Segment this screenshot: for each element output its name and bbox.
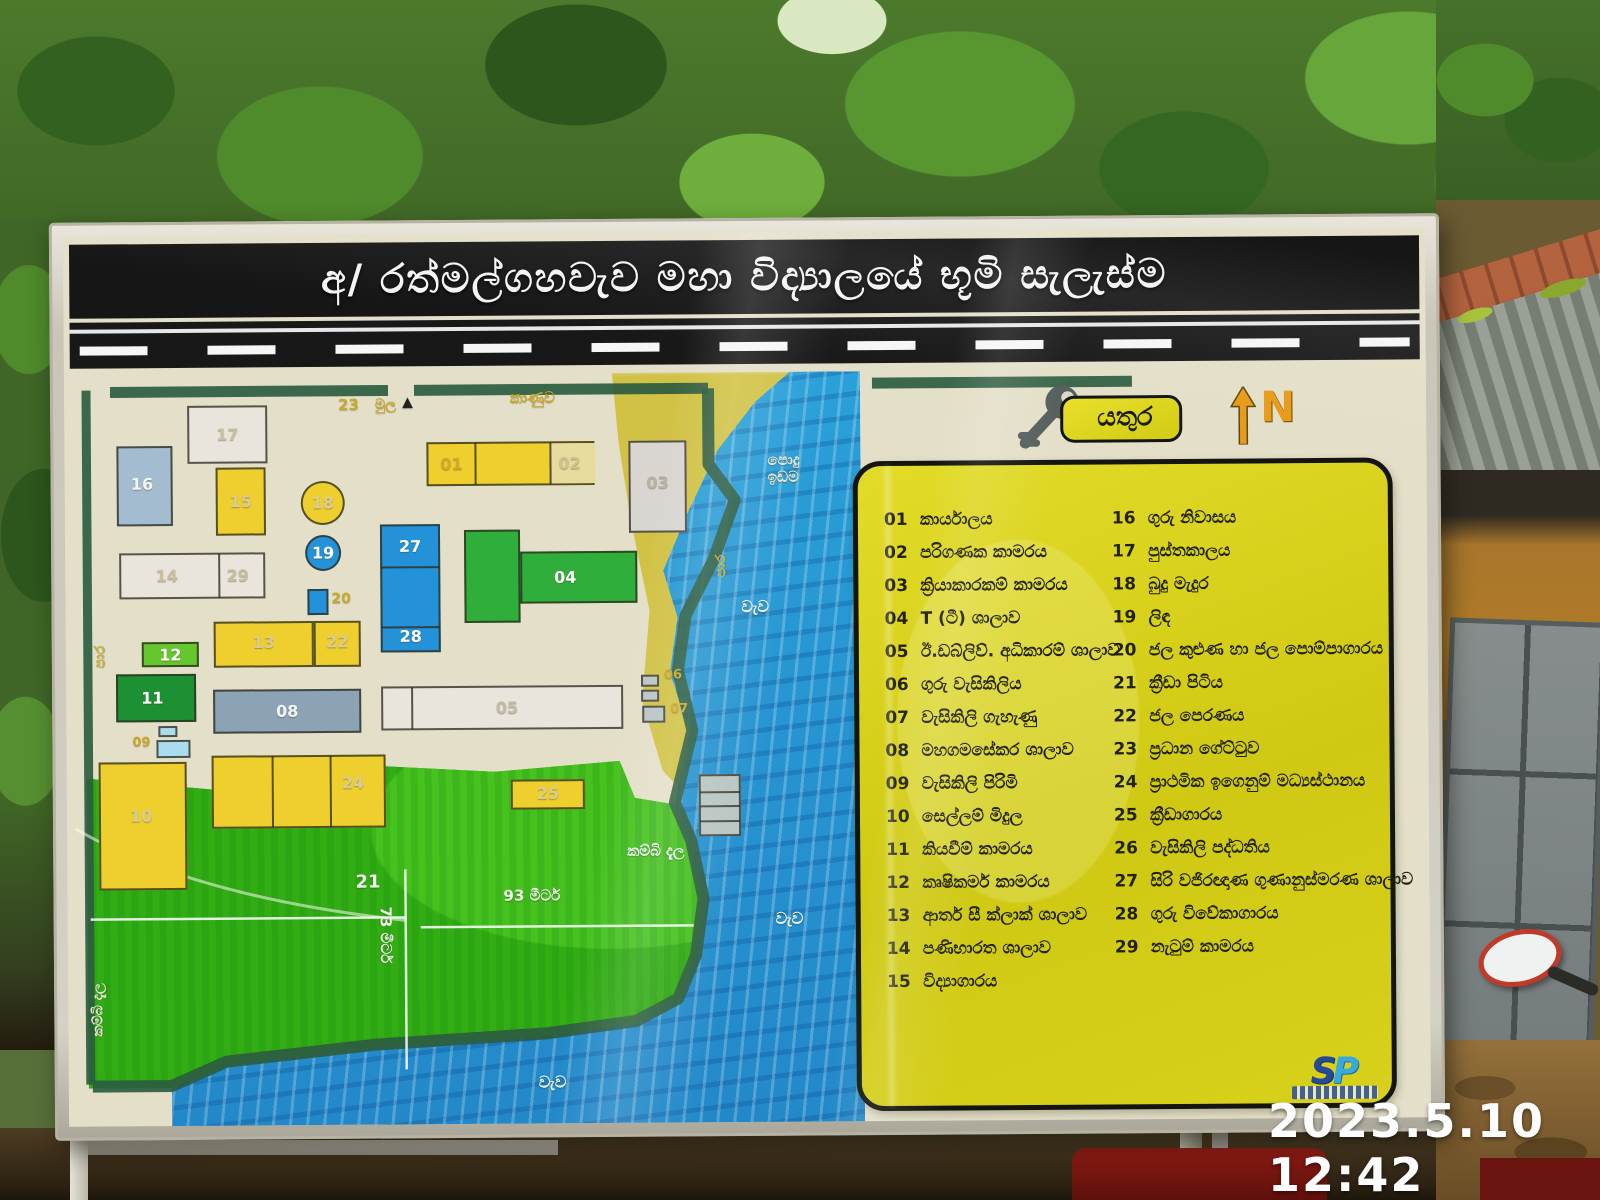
legend-item-12: 12කෘෂිකර්ම කාමරය	[886, 871, 1114, 893]
legend-column-2: 16ගුරු නිවාසය17පුස්තකාලය18බුදු මැදුර19ලි…	[1112, 506, 1414, 1003]
building-number: 14	[156, 566, 178, 585]
legend-item-25: 25ක්‍රීඩාගාරය	[1114, 803, 1413, 825]
map-label: කම්බි දැල	[90, 983, 106, 1036]
legend-item-24: 24ප්‍රාථමික ඉගෙනුම් මධ්‍යස්ථානය	[1114, 770, 1413, 792]
map-label: කම්බි දැල	[627, 842, 684, 860]
legend-text: ඊ.ඩබ්ලිව්. අධිකාරම් ශාලාව	[921, 640, 1120, 661]
building-09b	[156, 740, 190, 758]
printer-logo: SP	[1292, 1051, 1378, 1100]
legend-number: 17	[1112, 541, 1139, 561]
legend-item-07: 07වැසිකිලි ගැහැණු	[885, 706, 1113, 728]
legend-number: 27	[1114, 871, 1141, 891]
building-09a	[158, 726, 177, 737]
legend-item-02: 02පරිගණක කාමරය	[884, 541, 1112, 563]
photo-of-school-map-signboard: අ/ රත්මල්ගහවැව මහා විද්‍යාලයේ භූමි සැලැස…	[0, 0, 1600, 1200]
north-arrow-icon	[1230, 386, 1256, 444]
legend-item-21: 21ක්‍රීඩා පිටිය	[1113, 671, 1412, 693]
legend-text: පුස්තකාලය	[1148, 541, 1230, 562]
title-band: අ/ රත්මල්ගහවැව මහා විද්‍යාලයේ භූමි සැලැස…	[69, 235, 1419, 318]
legend-number: 24	[1114, 772, 1141, 792]
map-label: 93 මීටර්	[503, 887, 560, 905]
legend-text: කියවීම් කාමරය	[922, 839, 1033, 860]
road-dashed-line	[80, 337, 1410, 355]
building-06a	[641, 675, 659, 687]
legend-item-16: 16ගුරු නිවාසය	[1112, 506, 1411, 528]
building-number: 08	[276, 702, 298, 721]
legend-item-06: 06ගුරු වැසිකිලිය	[885, 673, 1113, 695]
legend-item-10: 10සෙල්ලම් මිදුල	[886, 805, 1114, 827]
map-label: ▲	[402, 394, 413, 410]
building-divider	[700, 805, 740, 807]
legend-item-17: 17පුස්තකාලය	[1112, 539, 1411, 561]
legend-columns: 01කාර්යාලය02පරිගණක කාමරය03ක්‍රියාකාරකම් …	[858, 463, 1392, 1014]
building-16: 16	[116, 446, 173, 526]
building-01-02: 0102	[426, 441, 594, 486]
legend-item-29: 29නැටුම් කාමරය	[1115, 935, 1414, 957]
building-13: 13	[214, 621, 314, 668]
legend-item-18: 18බුදු මැදුර	[1112, 572, 1411, 594]
legend-text: ලිඳ	[1149, 607, 1171, 627]
legend-text: සෙල්ලම් මිදුල	[922, 806, 1023, 827]
legend-number: 26	[1114, 838, 1141, 858]
road-solid-line	[70, 320, 1420, 333]
legend-text: ගුරු වැසිකිලිය	[921, 674, 1022, 695]
board-title: අ/ රත්මල්ගහවැව මහා විද්‍යාලයේ භූමි සැලැස…	[321, 251, 1168, 303]
legend-item-05: 05ඊ.ඩබ්ලිව්. අධිකාරම් ශාලාව	[885, 640, 1113, 662]
building-number: 27	[399, 537, 421, 556]
map-label: වැව	[539, 1073, 567, 1092]
legend-item-03: 03ක්‍රියාකාරකම් කාමරය	[884, 574, 1112, 596]
legend-item-14: 14පණිභාරත ශාලාව	[887, 937, 1115, 959]
building-number: 12	[159, 645, 181, 664]
building-number: 02	[558, 454, 580, 473]
building-divider	[700, 791, 740, 793]
legend-number: 28	[1115, 904, 1142, 924]
legend-item-09: 09වැසිකිලි පිරිමි	[886, 772, 1114, 794]
map-label: 20	[331, 591, 351, 607]
board-face: අ/ රත්මල්ගහවැව මහා විද්‍යාලයේ භූමි සැලැස…	[63, 227, 1431, 1126]
map-label: 73 මීටර්	[376, 906, 394, 963]
legend-item-22: 22ජල පෙරණය	[1113, 704, 1412, 726]
legend-item-08: 08මහගමසේකර ශාලාව	[885, 739, 1113, 761]
map-label: කාණුව	[510, 389, 555, 407]
map-label: මුල	[375, 396, 396, 412]
building-number: 11	[141, 689, 163, 708]
legend-text: විද්‍යාගාරය	[923, 971, 997, 992]
building-number: 03	[646, 473, 668, 492]
map-label: 06	[664, 668, 682, 683]
building-number: 15	[230, 492, 252, 511]
legend-text: නැටුම් කාමරය	[1151, 936, 1254, 957]
building-12: 12	[142, 642, 199, 667]
building-20	[307, 589, 328, 615]
building-15: 15	[216, 467, 266, 535]
legend-text: කාර්යාලය	[920, 509, 993, 530]
north-label: N	[1260, 386, 1295, 428]
legend-text: ජල කුළුණ හා ජල පොම්පාගාරය	[1149, 639, 1383, 661]
legend-item-01: 01කාර්යාලය	[884, 508, 1112, 530]
legend-text: මහගමසේකර ශාලාව	[921, 740, 1073, 761]
building-number: 22	[326, 632, 348, 651]
building-14-29: 1429	[119, 552, 265, 599]
legend-item-13: 13ආතර් සී ක්ලාක් ශාලාව	[887, 904, 1115, 926]
building-number: 29	[227, 566, 249, 585]
map-label: පොදු ඉඩම	[767, 452, 799, 487]
site-map: යතුර N 01කාර්යාලය02පරිගණක කාමරය03ක්‍රියා…	[72, 367, 1422, 1126]
signboard-support-bar	[88, 1140, 558, 1155]
building-number: 16	[131, 475, 153, 494]
building-27-28: 2728	[380, 524, 441, 652]
map-label: වැව	[776, 910, 804, 929]
legend-item-28: 28ගුරු විවේකාගාරය	[1115, 902, 1414, 924]
building-04b: 04	[520, 551, 637, 604]
map-label: පාර	[713, 555, 729, 578]
building-number: 13	[253, 633, 275, 652]
building-17: 17	[187, 405, 267, 464]
legend-number: 19	[1113, 607, 1140, 627]
building-number: 18	[312, 493, 334, 512]
building-divider	[272, 756, 274, 827]
legend-text: වැසිකිලි පද්ධතිය	[1150, 837, 1270, 858]
background-building	[1436, 0, 1600, 1200]
legend-number: 23	[1113, 739, 1140, 759]
legend-number: 16	[1112, 508, 1139, 528]
legend-item-11: 11කියවීම් කාමරය	[886, 838, 1114, 860]
building-divider	[218, 554, 220, 598]
legend-text: ගුරු විවේකාගාරය	[1151, 903, 1279, 924]
building-26	[699, 774, 741, 836]
building-number: 17	[216, 425, 238, 444]
legend-text: කෘෂිකර්ම කාමරය	[922, 872, 1049, 893]
building-11: 11	[116, 674, 196, 723]
building-divider	[700, 820, 740, 822]
legend-text: පණිභාරත ශාලාව	[923, 938, 1051, 959]
legend-item-19: 19ලිඳ	[1113, 605, 1412, 627]
map-label: පාර	[92, 646, 108, 669]
building-number: 10	[130, 807, 152, 826]
building-divider	[381, 566, 439, 568]
building-number: 28	[400, 627, 422, 646]
camera-timestamp: 2023.5.10 12:42	[1268, 1094, 1600, 1200]
legend-text: ප්‍රධාන ගේට්ටුව	[1149, 738, 1259, 759]
legend-column-1: 01කාර්යාලය02පරිගණක කාමරය03ක්‍රියාකාරකම් …	[884, 508, 1115, 1005]
window-shutters	[1434, 617, 1600, 1092]
legend-item-23: 23ප්‍රධාන ගේට්ටුව	[1113, 737, 1412, 759]
map-label: 07	[670, 702, 688, 717]
legend-text: වැසිකිලි ගැහැණු	[921, 707, 1037, 728]
building-18: 18	[301, 481, 345, 525]
legend-text: බුදු මැදුර	[1148, 574, 1209, 594]
legend-item-27: 27සිරි වජිරඥාණ ගුණානුස්මරණ ශාලාව	[1114, 869, 1413, 891]
legend-panel: 01කාර්යාලය02පරිගණක කාමරය03ක්‍රියාකාරකම් …	[852, 457, 1397, 1111]
legend-text: සිරි වජිරඥාණ ගුණානුස්මරණ ශාලාව	[1150, 869, 1413, 891]
map-label: 21	[355, 873, 380, 894]
building-24: 24	[212, 755, 387, 829]
building-divider	[411, 687, 413, 729]
building-22: 22	[314, 621, 361, 667]
legend-number: 20	[1113, 640, 1140, 660]
building-03: 03	[628, 440, 687, 532]
key-label: යතුර	[1060, 394, 1182, 442]
building-25: 25	[511, 779, 585, 810]
legend-text: පරිගණක කාමරය	[920, 542, 1047, 563]
legend-number: 25	[1114, 805, 1141, 825]
legend-text: ක්‍රියාකාරකම් කාමරය	[920, 575, 1067, 596]
legend-text: ගුරු නිවාසය	[1148, 508, 1236, 529]
building-divider	[549, 442, 551, 484]
legend-text: ක්‍රීඩා පිටිය	[1149, 673, 1223, 694]
building-08: 08	[213, 689, 361, 734]
legend-item-04: 04T (ටී) ශාලාව	[885, 607, 1113, 629]
legend-text: ආතර් සී ක්ලාක් ශාලාව	[923, 905, 1088, 926]
building-number: 25	[537, 784, 559, 803]
building-number: 05	[496, 698, 518, 717]
building-number: 04	[554, 568, 576, 587]
legend-text: වැසිකිලි පිරිමි	[922, 773, 1018, 794]
building-07	[642, 706, 665, 723]
legend-text: ප්‍රාථමික ඉගෙනුම් මධ්‍යස්ථානය	[1150, 771, 1366, 793]
map-label: 09	[132, 736, 150, 751]
legend-item-20: 20ජල කුළුණ හා ජල පොම්පාගාරය	[1113, 638, 1412, 660]
building-10: 10	[99, 762, 188, 891]
legend-item-26: 26වැසිකිලි පද්ධතිය	[1114, 836, 1413, 858]
building-number: 19	[312, 543, 334, 562]
building-06b	[641, 690, 659, 702]
map-key-header: යතුර	[1012, 381, 1182, 456]
legend-number: 29	[1115, 937, 1142, 957]
legend-text: T (ටී) ශාලාව	[921, 608, 1021, 629]
legend-item-15: 15විද්‍යාගාරය	[887, 970, 1115, 992]
building-divider	[474, 443, 476, 485]
building-05: 05	[381, 685, 623, 731]
road-stripe	[70, 313, 1420, 368]
legend-text: ක්‍රීඩාගාරය	[1150, 805, 1222, 826]
map-label: 23	[338, 397, 359, 414]
map-label: වැව	[741, 598, 769, 617]
north-indicator: N	[1230, 386, 1296, 444]
legend-number: 18	[1112, 574, 1139, 594]
building-04a	[464, 530, 521, 623]
legend-number: 21	[1113, 673, 1140, 693]
legend-number: 22	[1113, 706, 1140, 726]
building-number: 24	[342, 773, 364, 792]
building-divider	[330, 756, 332, 827]
building-19: 19	[305, 535, 341, 571]
legend-text: ජල පෙරණය	[1149, 706, 1244, 727]
building-number: 01	[440, 454, 462, 473]
school-ground-plan-board: අ/ රත්මල්ගහවැව මහා විද්‍යාලයේ භූමි සැලැස…	[49, 213, 1445, 1141]
